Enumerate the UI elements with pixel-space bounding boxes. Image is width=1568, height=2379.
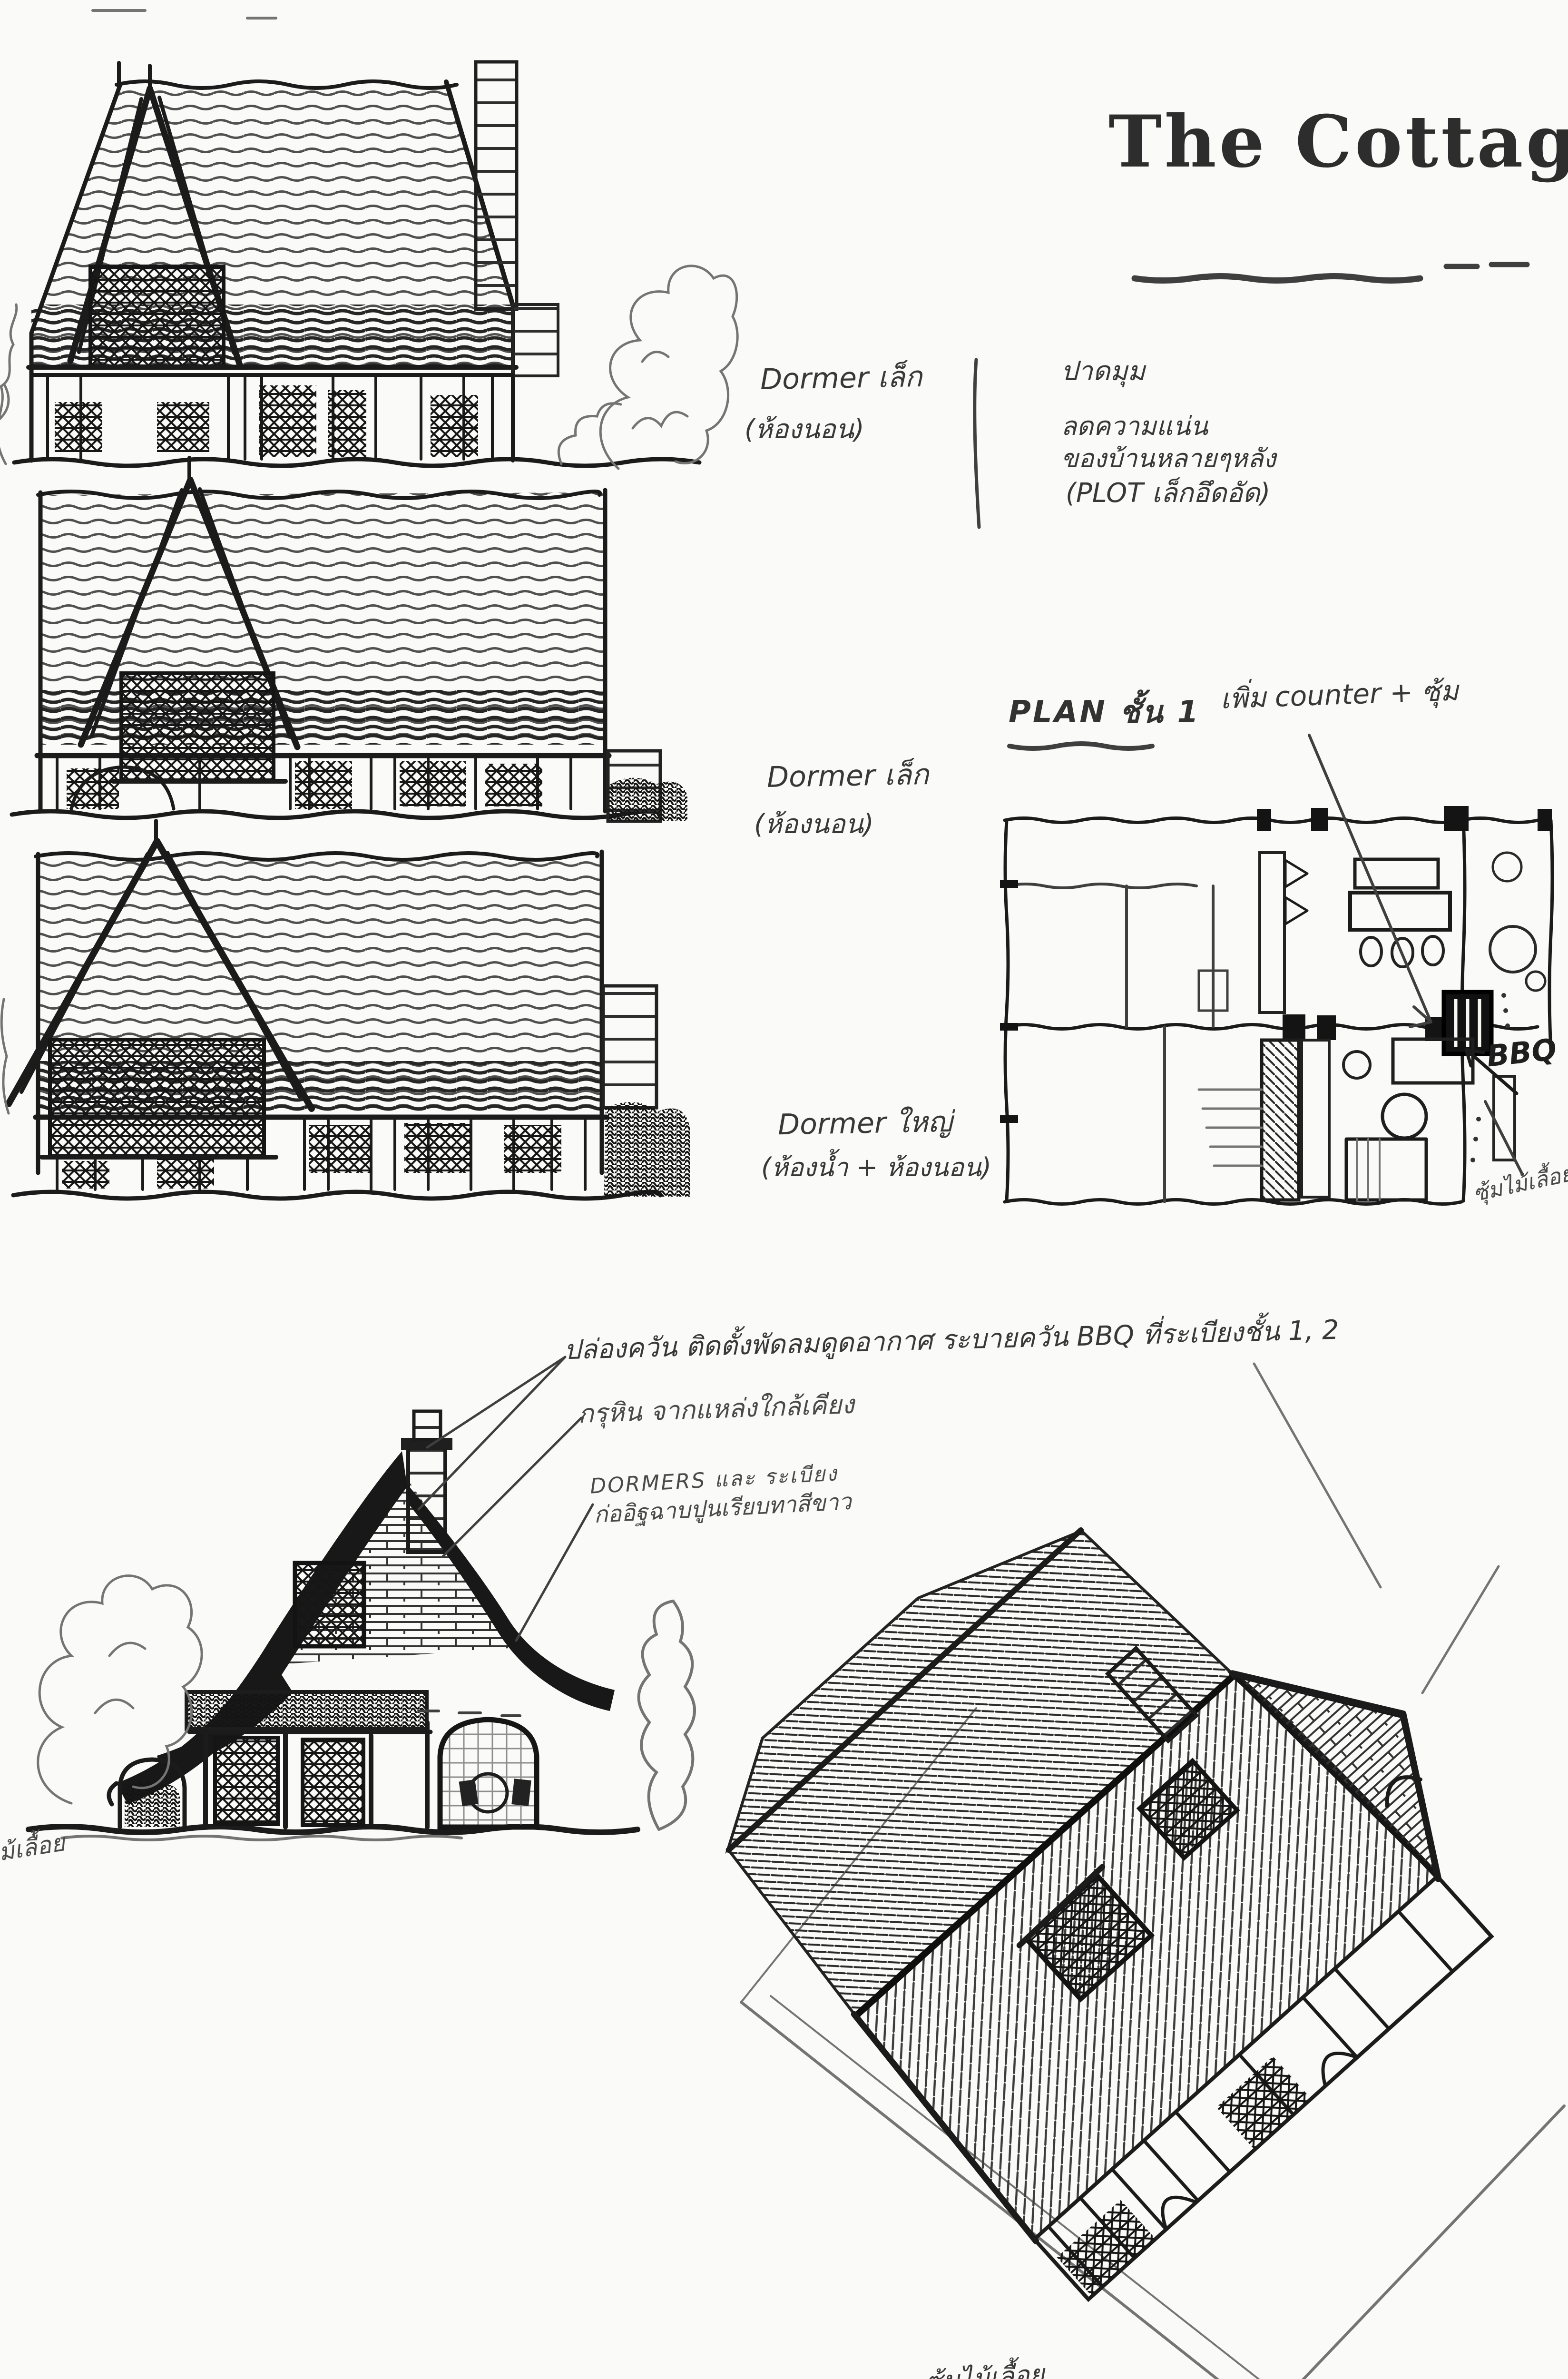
massing-note-line-4: (PLOT เล็กอึดอัด) [1066,479,1270,509]
page-title: The Cottage [1108,100,1568,184]
plan-bbq-label: BBQ [1485,1032,1558,1072]
massing-note-line-3: ของบ้านหลายๆหลัง [1061,444,1276,473]
dormer-large-note-sub: (ห้องน้ำ + ห้องนอน) [761,1153,991,1182]
dormer-small-note-2-sub: (ห้องนอน) [754,810,874,840]
aerial-perspective-sketch [664,1409,1564,2379]
massing-note-line-1: ปาดมุม [1061,357,1145,387]
elevation-sketch-2 [12,458,687,821]
elevation-sketch-3 [1,821,690,1199]
dormer-small-note-2-label: Dormer เล็ก [766,759,929,794]
floor-plan-sketch [1000,735,1552,1204]
plan-title: PLAN ชั้น 1 [1009,696,1200,730]
sketch-page: The Cottage Dormer เล็ก (ห้องนอน) ปาดมุม… [0,0,1568,2379]
elevation-sketch-1 [0,62,737,469]
dormer-small-note-1-label: Dormer เล็ก [760,361,922,396]
sketch-artwork [0,0,1568,2379]
dormer-small-note-1-sub: (ห้องนอน) [745,415,864,445]
dormer-large-note-label: Dormer ใหญ่ [777,1106,952,1141]
massing-note-line-2: ลดความแน่น [1061,412,1208,441]
